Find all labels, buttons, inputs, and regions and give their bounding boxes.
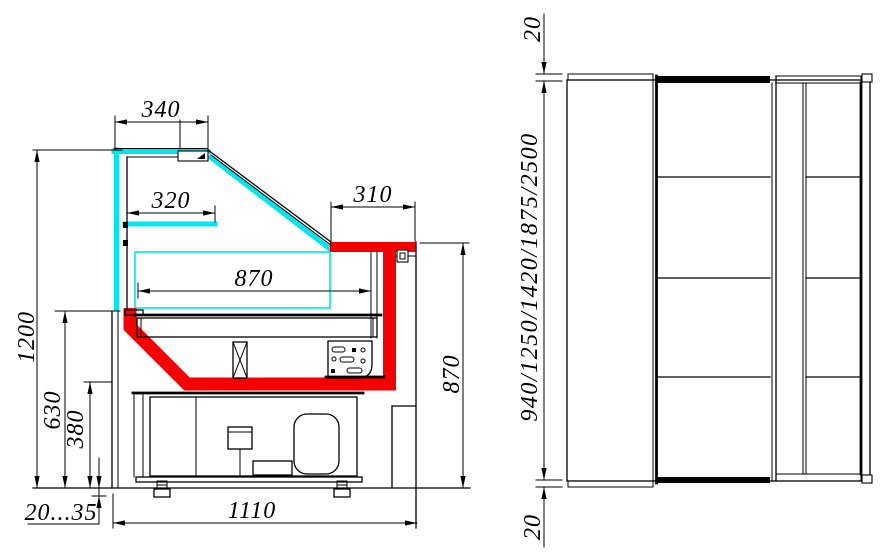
dimension-870-width: 870: [138, 266, 371, 298]
corner-notch-top: [862, 74, 872, 82]
compressor: [294, 414, 339, 474]
adjustable-foot-left: [154, 481, 170, 497]
top-bar-middle: [657, 76, 770, 83]
deck-body: [137, 318, 377, 337]
display-opening-outline: [135, 252, 330, 308]
dimension-20-top: 20: [520, 14, 562, 81]
fastener-detail: [397, 250, 408, 262]
dim-label-870-width: 870: [235, 266, 274, 292]
dim-label-1110: 1110: [228, 498, 276, 524]
dimension-870-height: 870: [420, 243, 469, 488]
dimension-lengths: 940/1250/1420/1875/2500: [517, 81, 547, 480]
adjustable-foot-right: [334, 481, 350, 497]
dim-label-320: 320: [151, 188, 191, 214]
top-strip-left: [568, 74, 653, 80]
ventilation-grille: [326, 341, 384, 378]
dimension-20-bottom: 20: [520, 480, 562, 547]
dimension-320: 320: [127, 188, 215, 222]
dim-label-1200: 1200: [14, 311, 40, 363]
support-column: [233, 342, 247, 378]
bottom-bar-middle: [657, 477, 770, 483]
dim-label-lengths: 940/1250/1420/1875/2500: [517, 132, 543, 421]
shelf-bracket-stud: [123, 222, 128, 228]
dim-label-380: 380: [63, 410, 89, 450]
bottom-strip-left: [568, 481, 653, 487]
bottom-strip-right: [776, 474, 861, 481]
drain-tray: [253, 461, 292, 475]
dim-label-20-bottom: 20: [520, 514, 546, 540]
sloped-glass: [211, 158, 330, 250]
dim-label-310: 310: [353, 182, 393, 208]
front-view-outline: [567, 80, 870, 481]
glass-panels: [114, 150, 330, 308]
shelf-bracket-stud: [123, 240, 128, 246]
dim-label-870-height: 870: [439, 355, 465, 394]
dim-label-20-top: 20: [520, 16, 546, 42]
dim-label-feet: 20...35: [25, 500, 98, 526]
dimension-380: 380: [63, 382, 112, 488]
sloped-glass-outer-edge: [208, 150, 331, 242]
technical-drawing: 340 320 310 870: [0, 0, 894, 559]
dimension-630: 630: [40, 311, 120, 488]
dimension-340: 340: [115, 97, 208, 151]
front-view: 20 940/1250/1420/1875/2500 20: [517, 14, 872, 547]
dimension-1110: 1110: [113, 494, 417, 528]
control-box: [228, 427, 252, 449]
corner-notch-bottom: [862, 475, 872, 483]
sloped-glass-inner-edge: [211, 155, 332, 246]
front-view-body: [567, 74, 872, 487]
side-section-view: 340 320 310 870: [14, 97, 470, 528]
base-plate: [136, 477, 362, 482]
dimension-310: 310: [331, 182, 415, 241]
dim-label-340: 340: [141, 97, 181, 123]
